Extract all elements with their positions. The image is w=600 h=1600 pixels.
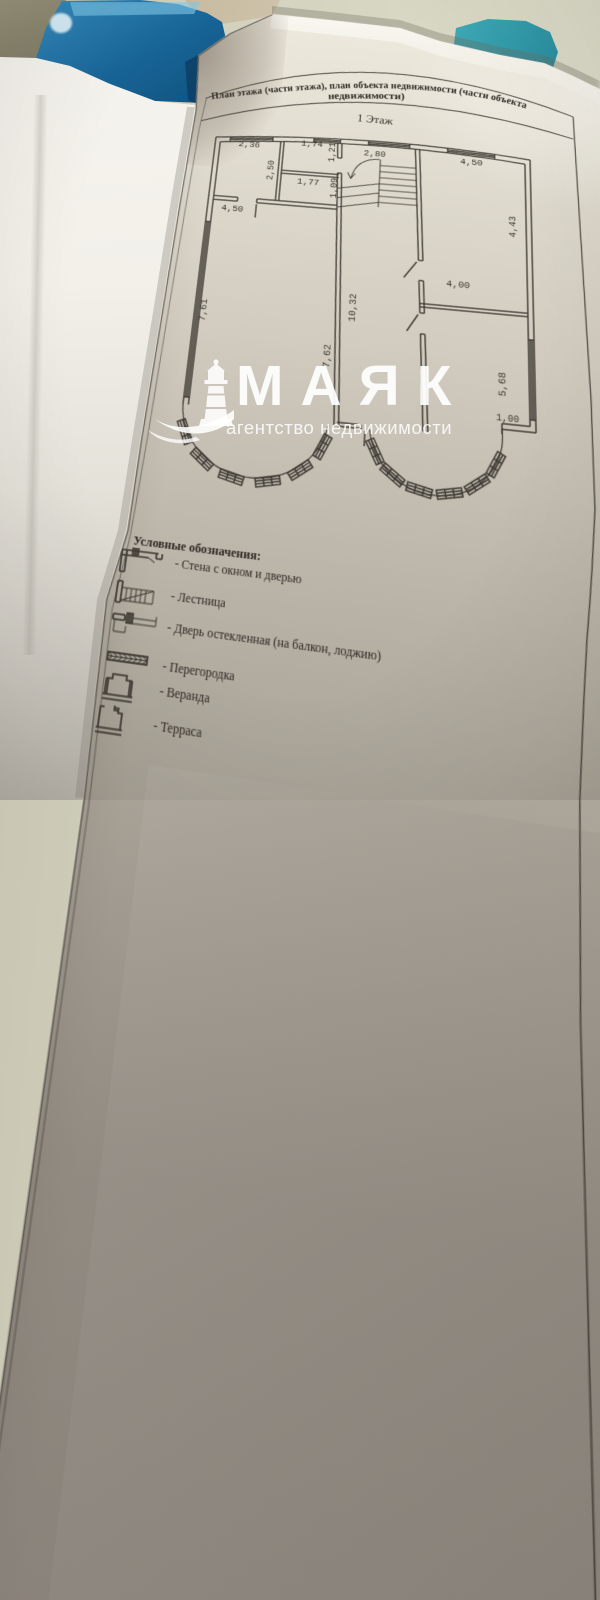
svg-text:1,77: 1,77 bbox=[297, 178, 320, 189]
svg-text:1,74: 1,74 bbox=[301, 140, 324, 150]
svg-text:2,50: 2,50 bbox=[266, 159, 278, 180]
svg-text:4,50: 4,50 bbox=[221, 204, 245, 215]
svg-text:4,43: 4,43 bbox=[509, 215, 520, 238]
svg-text:2,36: 2,36 bbox=[238, 141, 261, 151]
svg-text:1,21: 1,21 bbox=[328, 142, 339, 163]
svg-text:4,00: 4,00 bbox=[446, 280, 471, 292]
svg-text:1,09: 1,09 bbox=[330, 177, 341, 198]
svg-text:2,80: 2,80 bbox=[363, 150, 386, 160]
svg-text:4,50: 4,50 bbox=[460, 158, 483, 169]
svg-text:5,68: 5,68 bbox=[498, 371, 509, 397]
svg-text:7,61: 7,61 bbox=[198, 298, 211, 322]
svg-text:1,00: 1,00 bbox=[496, 413, 519, 426]
svg-text:10,32: 10,32 bbox=[348, 293, 360, 323]
